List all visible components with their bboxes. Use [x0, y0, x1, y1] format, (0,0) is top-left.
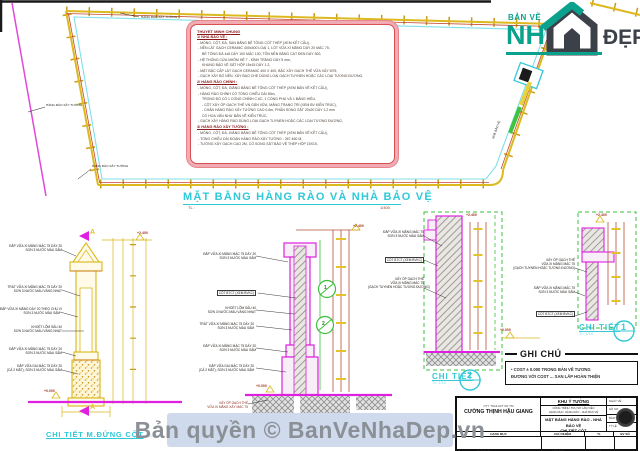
- annotation-line: SƠN 3 NƯỚC MÀU VÀNG NHẠT: [2, 289, 62, 293]
- annotation-line: SƠN 3 NƯỚC MÀU SẬM: [2, 351, 62, 355]
- title-block-meta-cell: NGÀY VẼ HỒ SƠ BẢN VẼ TỶ LỆ: [607, 398, 636, 431]
- property-line: [12, 3, 46, 196]
- fence-label: HÀNG RÀO XÂY TƯỜNG: [92, 164, 128, 168]
- project-name: KHU Ý TƯỞNG: [541, 398, 606, 406]
- spec-title: THUYẾT MINH CHUNG: [197, 29, 388, 34]
- plan-scale-label: TL :: [188, 205, 195, 210]
- header-cell: CHỦ NHIỆM: [541, 432, 585, 436]
- company-stamp: [616, 408, 635, 427]
- annotation-line: SƠN 3 NƯỚC MÀU VÀNG NHẠT: [198, 310, 256, 314]
- divider: [585, 437, 586, 449]
- level-mark-bottom: [506, 332, 514, 338]
- annotation: CỘT BTCT (XEM BVKC): [372, 257, 424, 263]
- detail-1-drawing: [502, 212, 636, 341]
- detail-1-scale: TL: 1/10: [579, 332, 620, 336]
- detail-1-number: 1: [621, 322, 626, 332]
- notes-title: GHI CHÚ: [520, 349, 562, 359]
- red-dim-lines: [608, 222, 624, 305]
- annotation-line: (GẠCH TUYNEN HOẶC TƯƠNG ĐƯƠNG): [368, 285, 424, 289]
- logo-suffix-text: ĐẸP: [603, 27, 640, 48]
- elevation-value: +2.400: [466, 213, 477, 217]
- detail-2-number: 2: [467, 370, 472, 380]
- left-detail-title: CHI TIẾT M.ĐỨNG CỘT: [46, 430, 144, 439]
- elevation-value: +0.000: [256, 384, 267, 388]
- marker-number-2: 2: [322, 321, 325, 327]
- spec-line: - TƯỜNG XÂY GẠCH CAO 2M, CÓ SONG SẮT BẢO…: [197, 142, 388, 148]
- project-desc-line: HẠNG MỤC: HÀNG RÀO - NHÀ BẢO VỆ: [542, 411, 605, 415]
- annotation: ĐẮP VỮA XI MĂNG MÁC 75 DÀY 20 SƠN 3 NƯỚC…: [2, 244, 62, 252]
- annotation-line: CỘT BTCT (XEM BVKC): [385, 257, 424, 263]
- fence-label: HÀNG RÀO XÂY TƯỜNG: [141, 15, 177, 19]
- meta-label: NGÀY VẼ: [607, 398, 636, 406]
- detail-2-drawing: [424, 212, 502, 390]
- red-dim-lines: [470, 222, 486, 350]
- wall-hatch: [436, 216, 462, 352]
- notes-line: • COST ± 0.000 TRONG BẢN VẼ TƯƠNG: [511, 366, 632, 373]
- general-notes: GHI CHÚ • COST ± 0.000 TRONG BẢN VẼ TƯƠN…: [505, 349, 638, 385]
- notes-line: ĐƯƠNG VỚI COST ... SAN LẤP HOÀN THIỆN: [511, 373, 632, 380]
- company-name: CƯỜNG THỊNH HẬU GIANG: [457, 409, 540, 415]
- ground-note: XÂY ỐP GẠCH THẺ VỮA XI MĂNG XÂY MÁC 75: [180, 401, 248, 409]
- notes-title-row: GHI CHÚ: [505, 349, 638, 359]
- drawing-sheet: HÀNG RÀO XÂY TƯỜNG HÀNG RÀO XÂY TƯỜNG HÀ…: [0, 0, 640, 451]
- annotation: ĐẮP VỮA XI MĂNG MÁC 75 DÀY 20 SƠN 3 NƯỚC…: [2, 347, 62, 355]
- elevation-value: +2.400: [596, 213, 607, 217]
- plan-scale-value: 1/400: [380, 205, 390, 210]
- annotation: ĐẮP VỮA XI MĂNG DÀY 20 THEO CHU VI SƠN 3…: [0, 307, 60, 315]
- section-arrow-top: [79, 231, 89, 241]
- elevation-value: +0.000: [500, 328, 511, 332]
- annotation: CỘT BTCT (XEM BVKC): [507, 311, 575, 317]
- elevation-value: +2.400: [137, 231, 148, 235]
- divider: [565, 353, 639, 355]
- ground-hatch: [426, 353, 496, 366]
- section-mark-label: A: [90, 229, 95, 236]
- annotation-line: CỘT BTCT (XEM BVKC): [536, 311, 575, 317]
- annotation-line: SƠN 3 NƯỚC MÀU SẬM: [198, 256, 256, 260]
- title-block-project-cell: KHU Ý TƯỞNG CÔNG TRÌNH: TRỤ SỞ LÀM VIỆC …: [541, 398, 607, 431]
- annotation-line: SƠN 3 NƯỚC MÀU VÀNG NHẠT: [2, 329, 62, 333]
- annotation: ĐẮP VỮA GAI MÁC 75 DÀY 20 (CẢ 2 MẶT), SƠ…: [196, 364, 254, 372]
- drawing-title: MẶT BẰNG HÀNG RÀO - NHÀ BẢO VỆ CHI TIẾT …: [541, 416, 606, 431]
- annotation: TRÁT VỮA XI MĂNG MÁC 75 DÀY 20 SƠN 3 NƯỚ…: [2, 285, 62, 293]
- watermark-text: Bản quyền © BanVeNhaDep.vn: [135, 417, 486, 444]
- elevation-value: +0.000: [44, 389, 55, 393]
- column-section-detail: [245, 224, 392, 416]
- annotation: TRÁT VỮA XI MĂNG MÁC 75 DÀY 20 SƠN 3 NƯỚ…: [196, 322, 254, 330]
- annotation: CỘT BTCT (XEM BVKC): [198, 290, 256, 296]
- header-cell: BV SỐ: [614, 432, 636, 436]
- drawing-title-line: MẶT BẰNG HÀNG RÀO - NHÀ BẢO VỆ: [541, 417, 606, 428]
- house-icon: [540, 2, 602, 56]
- plan-title: MẶT BẰNG HÀNG RÀO VÀ NHÀ BẢO VỆ: [183, 191, 401, 205]
- level-mark-bottom: [266, 386, 274, 392]
- detail-2-scale: TL: 1/10: [432, 381, 473, 385]
- annotation-line: CỘT BTCT (XEM BVKC): [217, 290, 256, 296]
- spec-notes-box: THUYẾT MINH CHUNG 1/ NHÀ BẢO VỆ : - MÓNG…: [190, 24, 395, 164]
- annotation: XÂY ỐP GẠCH THẺ VỮA XI MĂNG MÁC 75 (GẠCH…: [507, 258, 575, 270]
- divider: [541, 437, 542, 449]
- column-body: [68, 243, 104, 406]
- annotation: ĐẮP VỮA GAI MÁC 75 DÀY 20 (CẢ 2 MẶT), SƠ…: [2, 364, 62, 372]
- company-type: CTY TNHH ĐT XD TM: [457, 404, 540, 408]
- detail-1-label: CHI TIẾT: [579, 323, 620, 332]
- annotation-line: SƠN 3 NƯỚC MÀU SẬM: [372, 234, 424, 238]
- annotation-line: (GẠCH TUYNEN HOẶC TƯƠNG ĐƯƠNG): [507, 266, 575, 270]
- watermark-bar: Bản quyền © BanVeNhaDep.vn: [167, 413, 453, 447]
- divider: [505, 353, 517, 355]
- detail-1-label-row: CHI TIẾT TL: 1/10: [579, 323, 620, 336]
- section-mark-label: A: [90, 404, 95, 411]
- annotation: ĐẮP VỮA XI MĂNG MÁC 75 DÀY 20 SƠN 3 NƯỚC…: [198, 344, 256, 352]
- annotation: ĐẮP VỮA XI MĂNG MÁC 75 DÀY 20 SƠN 3 NƯỚC…: [198, 252, 256, 260]
- annotation-line: (CẢ 2 MẶT), SƠN 3 NƯỚC MÀU SẬM: [196, 368, 254, 372]
- leaders: [575, 268, 587, 316]
- annotation-line: SƠN 3 NƯỚC MÀU SẬM: [198, 348, 256, 352]
- marker-number-1: 1: [324, 285, 327, 291]
- elevation-value: +2.400: [353, 224, 364, 228]
- project-desc: CÔNG TRÌNH: TRỤ SỞ LÀM VIỆC HẠNG MỤC: HÀ…: [541, 406, 606, 416]
- annotation: XÂY ỐP GẠCH THẺ VỮA XI MĂNG MÁC 75 (GẠCH…: [368, 277, 424, 289]
- section-arrow-bottom: [79, 406, 89, 416]
- notes-box: • COST ± 0.000 TRONG BẢN VẼ TƯƠNG ĐƯƠNG …: [505, 361, 638, 385]
- annotation: KHOÉT LÕM SÂU 40 SƠN 3 NƯỚC MÀU VÀNG NHẠ…: [2, 325, 62, 333]
- annotation-line: (CẢ 2 MẶT), SƠN 3 NƯỚC MÀU SẬM: [2, 368, 62, 372]
- annotation-line: SƠN 3 NƯỚC MÀU SẬM: [2, 248, 62, 252]
- divider: [614, 437, 615, 449]
- annotation-line: VỮA XI MĂNG XÂY MÁC 75: [180, 405, 248, 409]
- annotation-line: SƠN 3 NƯỚC MÀU SẬM: [196, 326, 254, 330]
- site-logo: BẢN VẼ NH ĐẸP: [500, 2, 640, 62]
- annotation: ĐẮP VỮA XI MĂNG MÁC 75 SƠN 3 NƯỚC MÀU SẬ…: [372, 230, 424, 238]
- annotation-line: SƠN 3 NƯỚC MÀU SẬM: [507, 290, 575, 294]
- logo-underline: [506, 52, 602, 55]
- concrete-core-hatch: [294, 246, 306, 395]
- annotation-line: SƠN 3 NƯỚC MÀU SẬM: [0, 311, 60, 315]
- annotation: KHOÉT LÕM SÂU 40 SƠN 3 NƯỚC MÀU VÀNG NHẠ…: [198, 306, 256, 314]
- annotation: ĐẮP VỮA XI MĂNG MÁC 75 SƠN 3 NƯỚC MÀU SẬ…: [507, 286, 575, 294]
- header-cell: TL: [585, 432, 614, 436]
- fence-label: HÀNG RÀO XÂY TƯỜNG: [46, 103, 82, 107]
